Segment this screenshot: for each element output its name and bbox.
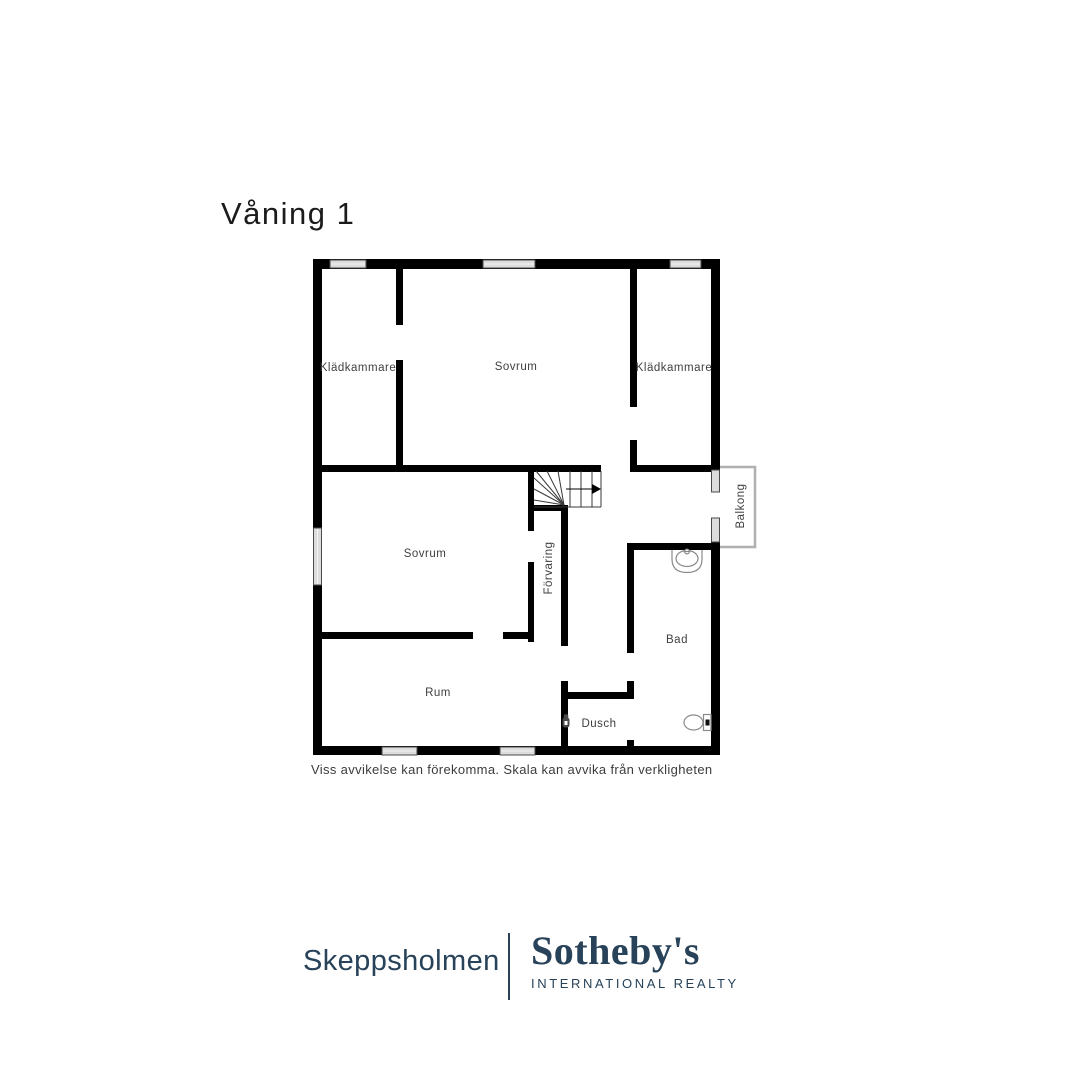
window-top-1 bbox=[330, 260, 366, 268]
toilet-icon bbox=[684, 715, 711, 731]
footer-brand-block: Sotheby's INTERNATIONAL REALTY bbox=[531, 929, 739, 991]
footer-brand-name: Sotheby's bbox=[531, 929, 739, 973]
wall-h3-right bbox=[503, 632, 534, 639]
room-label-kladkammare-right: Klädkammare bbox=[636, 362, 712, 374]
wall-v1-upper bbox=[396, 269, 403, 325]
window-bottom-1 bbox=[382, 747, 417, 755]
wall-h2 bbox=[630, 465, 715, 472]
room-label-forvaring: Förvaring bbox=[543, 541, 555, 594]
stairs-winder-fan bbox=[534, 471, 564, 505]
outer-walls bbox=[313, 259, 720, 755]
wall-bad-top bbox=[627, 543, 715, 550]
room-label-dusch: Dusch bbox=[581, 718, 616, 730]
balcony-door-glass-upper bbox=[712, 470, 720, 492]
floorplan-svg: Klädkammare Sovrum Klädkammare Sovrum Fö… bbox=[0, 0, 1080, 1080]
room-label-rum: Rum bbox=[425, 687, 451, 699]
stairs-direction-arrow bbox=[566, 484, 601, 494]
window-top-2 bbox=[483, 260, 535, 268]
wall-outer-left bbox=[313, 259, 322, 755]
footer-agency-name: Skeppsholmen bbox=[303, 945, 500, 978]
bathroom-fixtures bbox=[563, 549, 712, 730]
room-label-bad: Bad bbox=[666, 634, 688, 646]
room-label-sovrum-lower: Sovrum bbox=[404, 548, 447, 560]
wall-forvaring-right bbox=[561, 505, 568, 646]
sink-icon bbox=[672, 549, 702, 572]
balcony-door-glass-lower bbox=[712, 518, 720, 542]
window-top-3 bbox=[670, 260, 701, 268]
wall-v4 bbox=[561, 681, 568, 746]
balcony-door-opening bbox=[711, 492, 720, 518]
room-label-sovrum-upper: Sovrum bbox=[495, 361, 538, 373]
wall-bad-left-stub bbox=[627, 740, 634, 746]
wall-forvaring-left-lower bbox=[528, 562, 534, 642]
footer-divider bbox=[508, 933, 510, 1000]
windows bbox=[314, 260, 720, 755]
wall-forvaring-left-upper bbox=[528, 511, 534, 531]
wall-v2-upper bbox=[630, 269, 637, 407]
wall-h1 bbox=[316, 465, 601, 472]
wall-bad-left bbox=[627, 543, 634, 653]
window-bottom-2 bbox=[500, 747, 535, 755]
wall-dusch-stub-right bbox=[627, 681, 634, 699]
interior-walls bbox=[316, 269, 715, 746]
window-left-1 bbox=[314, 528, 322, 585]
disclaimer-text: Viss avvikelse kan förekomma. Skala kan … bbox=[311, 762, 713, 777]
room-label-balkong: Balkong bbox=[735, 483, 747, 528]
room-label-kladkammare-left: Klädkammare bbox=[320, 362, 396, 374]
stairs bbox=[534, 471, 601, 507]
wall-v1-lower bbox=[396, 360, 403, 472]
footer-brand-subtitle: INTERNATIONAL REALTY bbox=[531, 976, 739, 991]
wall-dusch-top bbox=[561, 692, 634, 699]
wall-h3-left bbox=[316, 632, 473, 639]
